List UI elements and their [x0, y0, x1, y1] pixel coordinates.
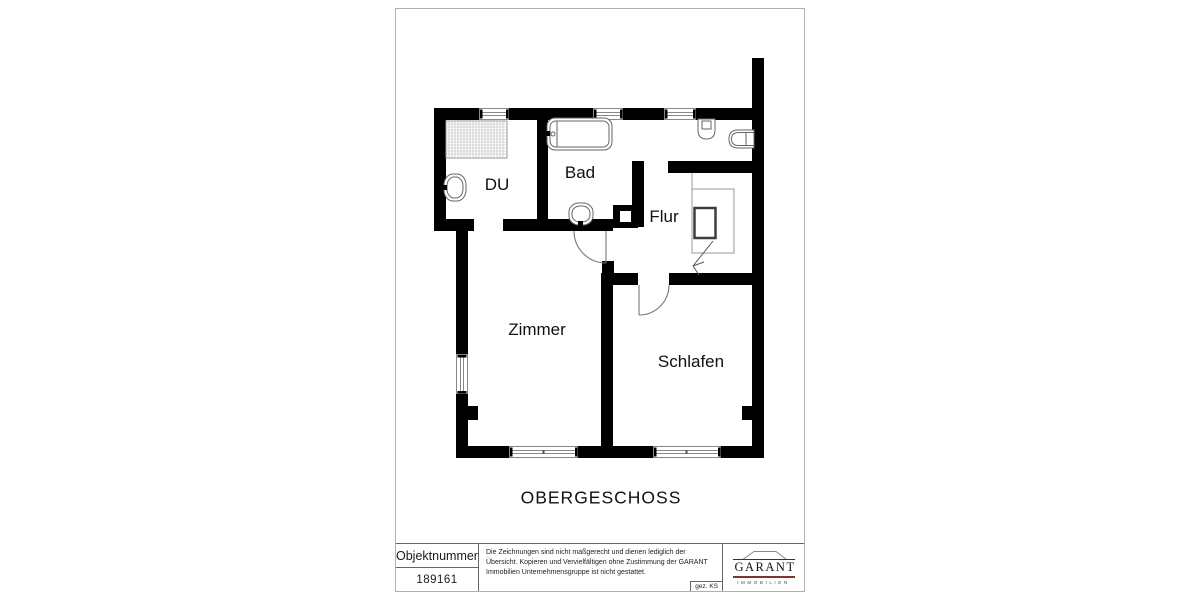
window-icon: [654, 447, 721, 458]
door-swing-icon: [639, 285, 669, 315]
disclaimer-cell: Die Zeichnungen sind nicht maßgerecht un…: [479, 544, 722, 591]
garant-logo: GARANT IMMOBILIEN: [733, 550, 795, 585]
disclaimer-text: Die Zeichnungen sind nicht maßgerecht un…: [486, 548, 715, 578]
drawing-sheet: DU Bad Flur Zimmer Schlafen OBERGESCHOSS…: [395, 8, 805, 592]
title-block: Objektnummer 189161 Die Zeichnungen sind…: [396, 543, 804, 591]
window-icon: [457, 355, 468, 394]
staircase-icon: [692, 173, 734, 275]
room-label-schlafen: Schlafen: [658, 352, 724, 372]
room-label-zimmer: Zimmer: [508, 320, 566, 340]
washbasin-icon: [442, 174, 466, 201]
window-icon: [510, 447, 578, 458]
object-number-value: 189161: [396, 568, 478, 591]
hand-basin-icon: [729, 130, 754, 148]
signed-by: gez. KS: [690, 581, 722, 591]
logo-brand-text: GARANT: [733, 559, 795, 578]
floor-title: OBERGESCHOSS: [521, 488, 682, 509]
chimney-shaft-icon: [613, 205, 638, 228]
room-label-flur: Flur: [649, 207, 678, 227]
bathtub-icon: [545, 118, 612, 150]
logo-cell: GARANT IMMOBILIEN: [722, 544, 804, 591]
toilet-icon: [698, 119, 715, 139]
object-number-cell: Objektnummer 189161: [396, 544, 479, 591]
room-label-du: DU: [485, 175, 510, 195]
window-icon: [480, 109, 509, 120]
door-swing-icon: [574, 231, 606, 263]
logo-division-text: IMMOBILIEN: [737, 580, 790, 585]
shower-icon: [446, 121, 507, 158]
room-label-bad: Bad: [565, 163, 595, 183]
washbasin-icon: [569, 203, 593, 226]
object-number-label: Objektnummer: [396, 544, 478, 568]
fixtures-layer: [442, 118, 754, 275]
window-icon: [665, 109, 696, 120]
